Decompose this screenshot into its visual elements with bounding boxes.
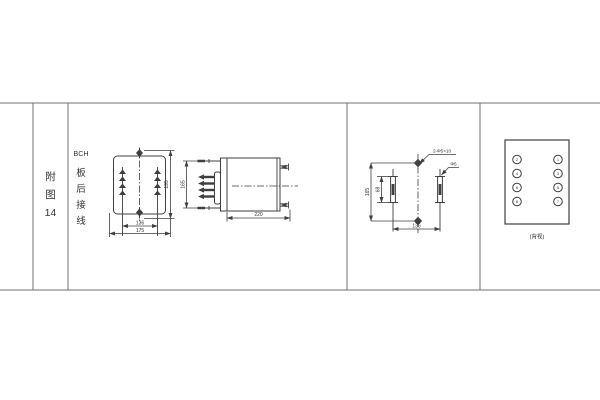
title-line: 线 bbox=[76, 215, 86, 227]
slot-length-dimension: 68 bbox=[375, 177, 389, 203]
drill-plan-drawing: 165 68 2-Φ5×10 bbox=[365, 149, 459, 234]
dim-label-terminal-height: 165 bbox=[180, 180, 186, 189]
dim-label-inner-width: 136 bbox=[136, 220, 145, 226]
front-plate bbox=[221, 158, 228, 211]
rear-view-caption: (背视) bbox=[530, 233, 545, 241]
top-mounting-hole bbox=[414, 159, 422, 167]
figure-label-char: 图 bbox=[45, 189, 56, 201]
technical-drawing: 附 图 14 BCH 板 后 接 线 bbox=[0, 0, 600, 400]
dim-label-drill-height: 165 bbox=[365, 188, 371, 197]
right-slot bbox=[435, 169, 445, 232]
terminal-board-outline bbox=[505, 140, 569, 224]
figure-label-number: 14 bbox=[45, 207, 57, 219]
slot-diameter-note: Φ5 bbox=[442, 162, 460, 176]
rear-screw-bottom bbox=[280, 202, 289, 209]
figure-page: 附 图 14 BCH 板 后 接 线 bbox=[0, 0, 600, 400]
dim-label-depth: 220 bbox=[254, 212, 263, 218]
front-view-drawing: 195 136 175 bbox=[110, 148, 175, 238]
dim-label-slot-spacing: 136 bbox=[412, 223, 421, 229]
figure-number-column: 附 图 14 bbox=[45, 170, 57, 219]
slot-spacing-dimension: 136 bbox=[393, 223, 440, 229]
title-line: BCH bbox=[73, 149, 88, 158]
dim-label-outer-width: 175 bbox=[136, 228, 145, 234]
rear-screw-top bbox=[280, 164, 289, 171]
drill-height-dimension: 165 bbox=[365, 163, 414, 221]
dim-label-slot-length: 68 bbox=[375, 187, 381, 193]
title-line: 后 bbox=[76, 184, 86, 195]
terminal-block bbox=[215, 172, 221, 204]
side-view-drawing: 165 220 bbox=[180, 158, 298, 222]
dim-label-height: 195 bbox=[164, 180, 170, 189]
terminal-rear-view-drawing: 2 4 6 8 1 3 5 7 (背视) bbox=[505, 140, 569, 241]
terminal-pins bbox=[198, 174, 215, 199]
title-line: 板 bbox=[76, 167, 86, 179]
figure-title-column: BCH 板 后 接 线 bbox=[73, 149, 88, 227]
note-label-slot: Φ5 bbox=[450, 162, 457, 167]
relay-body bbox=[227, 158, 280, 211]
note-label-holes: 2-Φ5×10 bbox=[433, 149, 452, 154]
title-line: 接 bbox=[76, 199, 86, 211]
front-inner-width-dimension: 136 bbox=[123, 220, 158, 226]
left-slot bbox=[388, 169, 398, 232]
terminal-height-dimension: 165 bbox=[180, 161, 201, 208]
figure-label-char: 附 bbox=[45, 170, 56, 183]
